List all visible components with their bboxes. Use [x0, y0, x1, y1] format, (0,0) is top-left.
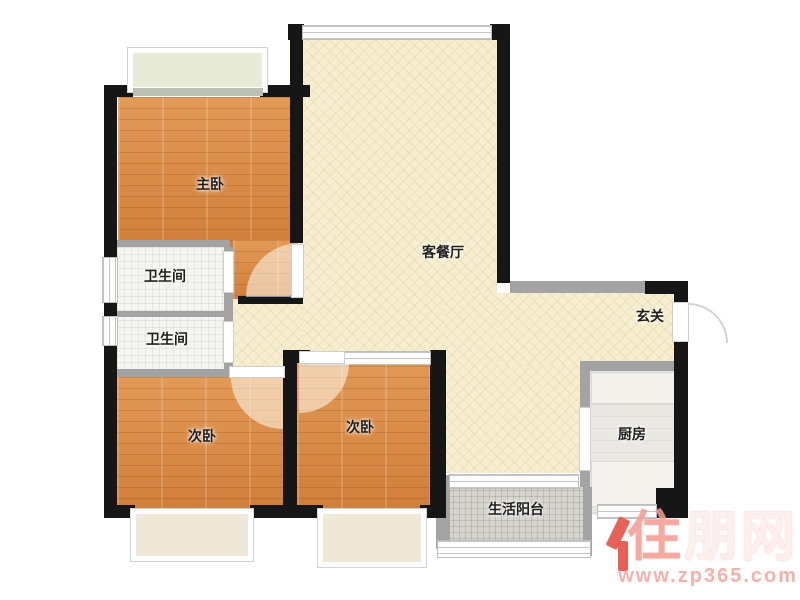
- wall-segment: [288, 24, 304, 40]
- window-living-top: [303, 26, 491, 39]
- room-label-bathroom-upper: 卫生间: [144, 266, 186, 286]
- room-label-entrance: 玄关: [636, 306, 664, 326]
- wall-segment: [104, 240, 230, 247]
- door-swing-arc-entrance: [688, 303, 728, 343]
- wall-segment: [580, 361, 674, 371]
- room-label-kitchen: 厨房: [618, 424, 646, 444]
- wall-segment: [238, 296, 303, 304]
- wall-segment: [497, 25, 510, 283]
- door-leaf-bathroom-upper: [224, 252, 233, 292]
- wall-segment: [580, 470, 590, 487]
- watermark-brand: 住朋网: [618, 510, 798, 564]
- wall-segment: [104, 311, 230, 317]
- floor-plan: 主卧 卫生间 卫生间 次卧 次卧 客餐厅 玄关 厨房 生活阳台 住朋网 www.…: [0, 0, 800, 600]
- door-leaf-master: [292, 245, 303, 297]
- room-label-bedroom-left: 次卧: [188, 426, 216, 446]
- door-leaf-bathroom-lower: [224, 322, 233, 362]
- room-label-bathroom-lower: 卫生间: [146, 329, 188, 349]
- window-balcony-door: [450, 475, 578, 488]
- door-opening-kitchen: [580, 408, 590, 470]
- kitchen-counter: [592, 373, 674, 403]
- room-floor-entrance: [497, 293, 675, 366]
- window-bathroom-upper: [103, 258, 117, 302]
- wall-segment: [430, 350, 446, 512]
- watermark-url: www.zp365.com: [618, 566, 798, 586]
- window-bathroom-lower: [103, 317, 117, 345]
- window-sill: [133, 88, 263, 96]
- wall-segment: [674, 341, 688, 373]
- door-leaf-entrance: [673, 303, 688, 341]
- wall-segment: [510, 281, 647, 293]
- room-label-master-bedroom: 主卧: [196, 174, 224, 194]
- bay-window-bedroom-middle: [318, 509, 426, 567]
- watermark-brand-first-char: 住: [627, 507, 684, 567]
- wall-segment: [250, 505, 285, 518]
- wall-segment: [290, 30, 303, 243]
- wall-segment: [283, 350, 297, 512]
- window-balcony-outer: [438, 541, 590, 557]
- bay-window-master: [128, 48, 267, 92]
- door-leaf-bedroom-left: [230, 367, 284, 377]
- bay-window-bedroom-left: [131, 509, 253, 561]
- wall-segment: [104, 369, 230, 377]
- door-leaf-bedroom-middle: [300, 352, 344, 363]
- wall-segment: [580, 371, 590, 408]
- room-label-balcony: 生活阳台: [488, 499, 544, 519]
- room-label-bedroom-middle: 次卧: [346, 417, 374, 437]
- wall-segment: [674, 283, 688, 303]
- room-label-living-dining: 客餐厅: [422, 242, 464, 262]
- watermark-red-accent: [618, 541, 628, 571]
- watermark: 住朋网 www.zp365.com: [618, 510, 798, 586]
- watermark-brand-rest: 朋网: [684, 507, 798, 567]
- room-floor-master-bedroom: [118, 97, 298, 247]
